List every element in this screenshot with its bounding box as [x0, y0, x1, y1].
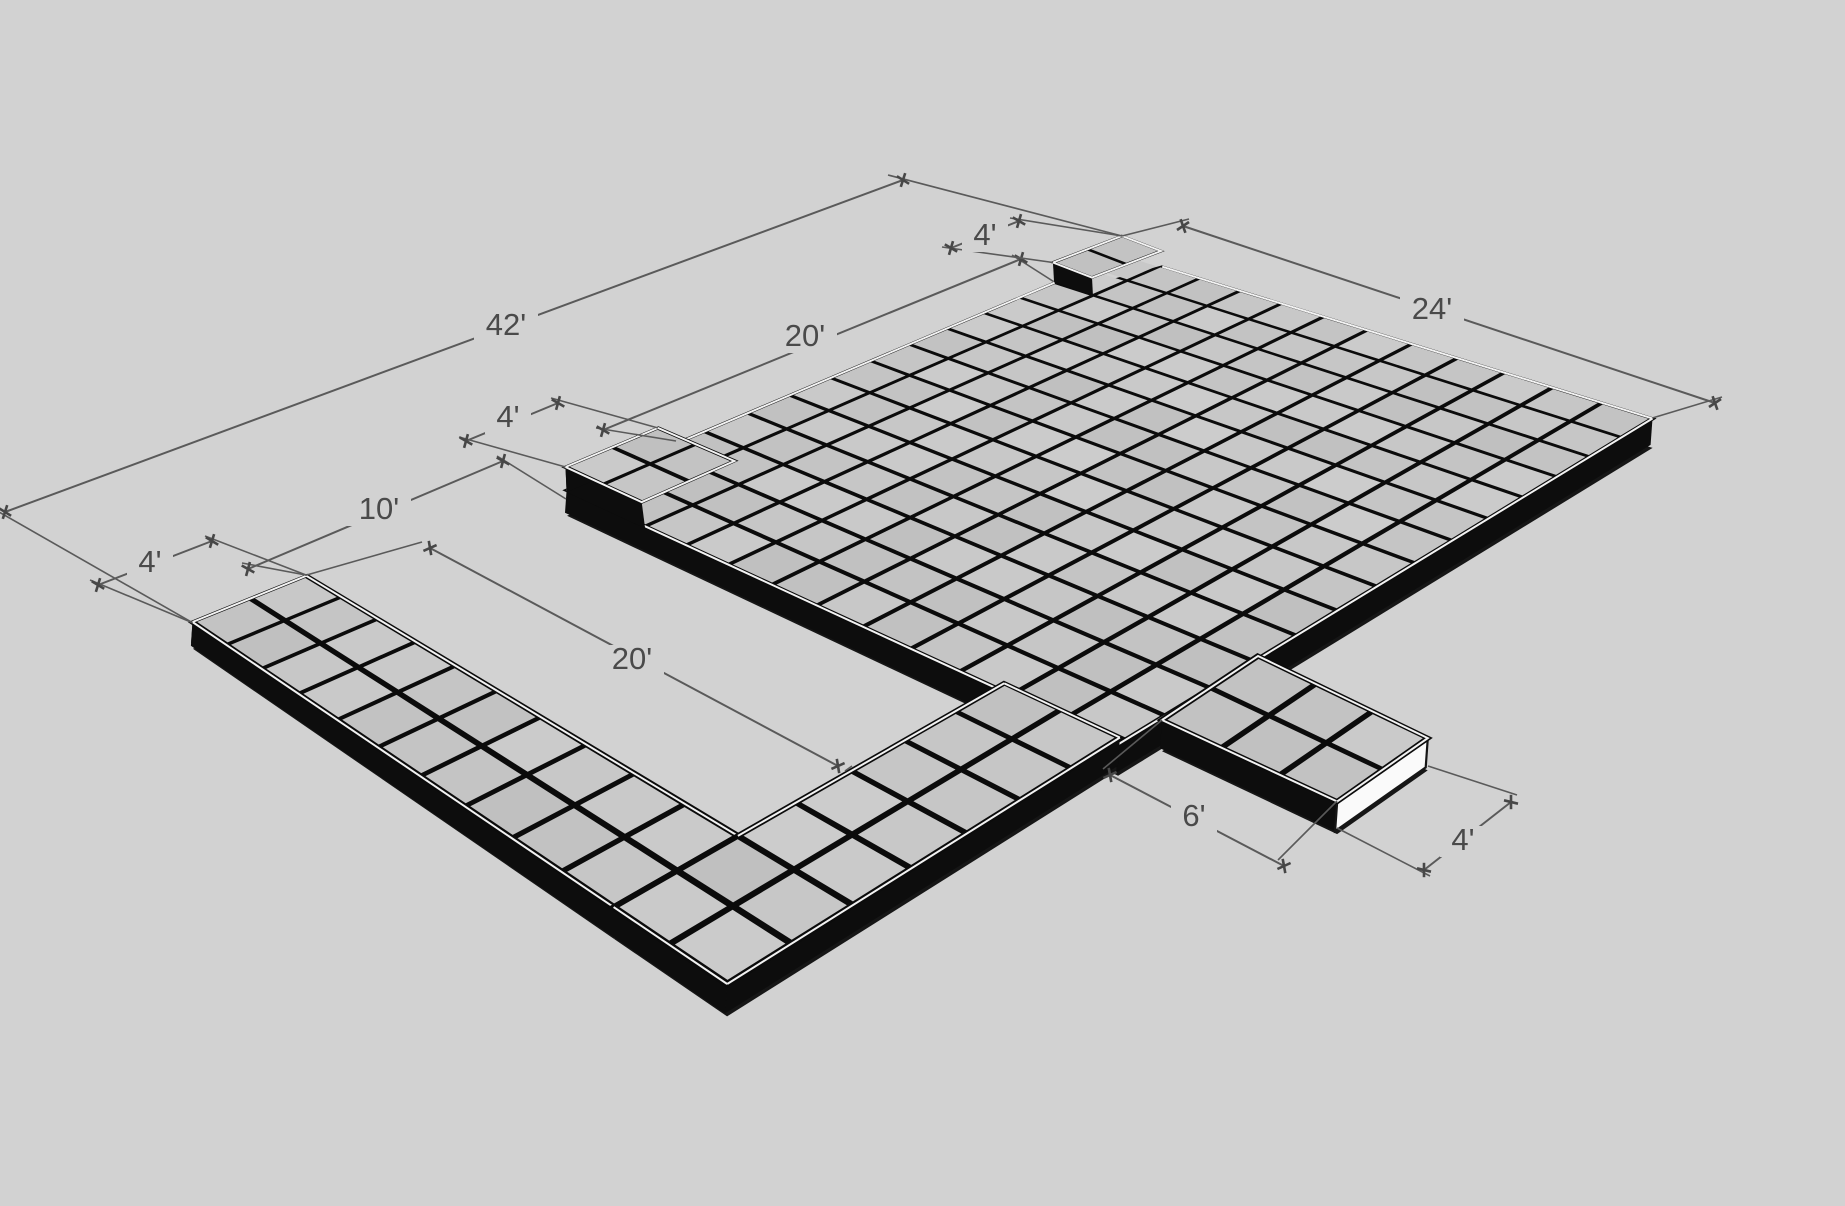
svg-text:4': 4'	[138, 544, 161, 579]
svg-text:4': 4'	[1451, 822, 1474, 857]
svg-text:20': 20'	[785, 318, 825, 353]
svg-text:20': 20'	[612, 641, 652, 676]
svg-text:4': 4'	[973, 217, 996, 252]
svg-text:42': 42'	[486, 307, 526, 342]
svg-text:6': 6'	[1182, 798, 1205, 833]
svg-text:4': 4'	[496, 399, 519, 434]
svg-text:10': 10'	[359, 491, 399, 526]
svg-text:24': 24'	[1412, 291, 1452, 326]
